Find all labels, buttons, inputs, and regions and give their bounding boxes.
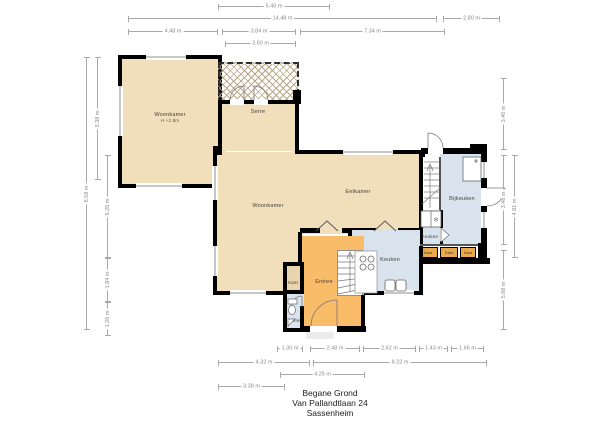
dim-right: 3.40 m xyxy=(503,78,504,150)
window xyxy=(212,246,218,276)
dim-bottom: 3.38 m xyxy=(218,386,285,387)
wall-segment xyxy=(300,306,304,328)
room-label: Woonkamer H +2.8m xyxy=(154,112,185,124)
dim-bottom: 2.48 m xyxy=(310,348,360,349)
dim-left: 1.26 m xyxy=(107,302,108,336)
window xyxy=(230,290,266,296)
window xyxy=(343,149,393,155)
dim-top: 5.40 m xyxy=(218,6,330,7)
address: Van Pallandtlaan 24 xyxy=(230,398,430,408)
room-label: Entree xyxy=(315,279,332,285)
room-label: Keuken xyxy=(422,234,438,240)
window xyxy=(481,212,487,228)
door-arc xyxy=(428,133,443,148)
window xyxy=(117,86,123,136)
dim-left: 6.20 m xyxy=(107,155,108,258)
wall-chunk xyxy=(478,243,487,260)
title-block: Begane Grond Van Pallandtlaan 24 Sassenh… xyxy=(230,388,430,418)
window xyxy=(384,290,414,296)
closet-label: Kast xyxy=(424,251,432,255)
dim-top: 3.60 m xyxy=(225,43,296,44)
dim-top: 2.80 m xyxy=(443,18,500,19)
city: Sassenheim xyxy=(230,408,430,418)
dim-right: 4.81 m xyxy=(514,155,515,258)
dim-bottom: 4.32 m xyxy=(218,362,310,363)
stairs-entree-area xyxy=(337,250,363,296)
wall-segment xyxy=(417,244,487,246)
wall-chunk xyxy=(293,90,301,104)
dim-bottom: 1.30 m xyxy=(277,348,303,349)
wall-segment xyxy=(361,295,365,332)
room-label: Toilet xyxy=(289,318,301,324)
dim-bottom: 1.43 m xyxy=(419,348,448,349)
wall-chunk xyxy=(213,146,222,155)
dim-bottom: 2.62 m xyxy=(363,348,416,349)
dim-right: 3.48 m xyxy=(503,155,504,245)
room-label: Bijkeuken xyxy=(449,196,475,202)
pergola-canopy xyxy=(218,62,299,104)
dim-bottom: 8.32 m xyxy=(313,362,487,363)
wall-segment xyxy=(300,228,320,233)
dim-bottom: 4.25 m xyxy=(280,374,365,375)
door-mat xyxy=(306,332,334,339)
floor-plan-page: Woonkamer H +2.8m Serre Eetkamer Woonkam… xyxy=(0,0,600,424)
wall-segment xyxy=(439,157,441,210)
door-opening xyxy=(440,228,443,241)
closet-label: Kast xyxy=(445,251,453,255)
stairwell xyxy=(423,157,439,212)
wall-chunk xyxy=(470,144,487,154)
door-opening xyxy=(481,188,487,206)
room-label: Serre xyxy=(251,109,265,115)
floor-name: Begane Grond xyxy=(230,388,430,398)
window xyxy=(481,162,487,178)
dim-left: 6.58 m xyxy=(86,57,87,330)
dim-top: 3.84 m xyxy=(222,31,296,32)
room-label: Kast xyxy=(288,280,298,286)
room-keuken-klein xyxy=(421,210,440,246)
closet-label: Kast xyxy=(464,251,472,255)
dim-top: 14.48 m xyxy=(128,18,437,19)
window xyxy=(136,183,182,189)
dim-left: 5.38 m xyxy=(97,57,98,180)
room-living-dining xyxy=(215,152,425,234)
room-label: Keuken xyxy=(380,257,400,263)
dim-top: 4.48 m xyxy=(128,31,218,32)
wall-segment xyxy=(300,262,304,294)
window xyxy=(212,166,218,200)
dim-top: 7.34 m xyxy=(300,31,445,32)
window xyxy=(146,54,186,60)
door-opening xyxy=(428,148,443,154)
dim-bottom: 1.66 m xyxy=(451,348,484,349)
dim-right: 5.88 m xyxy=(503,250,504,330)
door-opening xyxy=(254,99,268,105)
room-label: Woonkamer xyxy=(252,203,283,209)
room-kast-hal xyxy=(287,266,300,290)
dim-left: 1.84 m xyxy=(107,258,108,302)
room-label: Eetkamer xyxy=(345,189,370,195)
wall-segment xyxy=(419,246,423,295)
door-opening xyxy=(230,99,244,105)
